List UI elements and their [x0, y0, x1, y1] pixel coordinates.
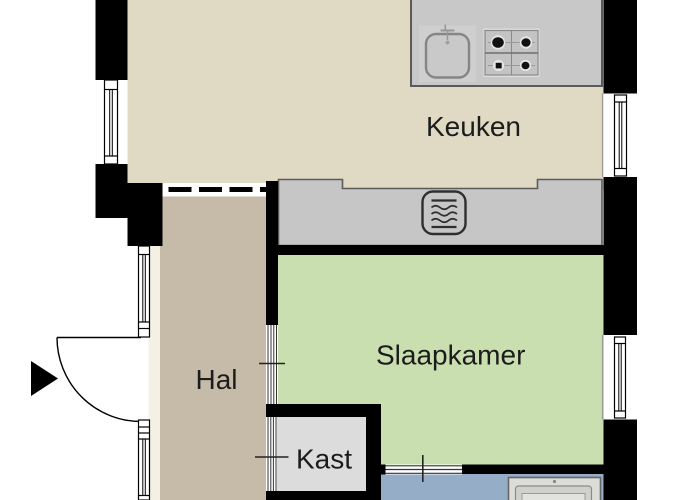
svg-text:Slaapkamer: Slaapkamer [376, 340, 525, 371]
svg-text:Hal: Hal [196, 364, 238, 395]
svg-text:Kast: Kast [296, 444, 352, 475]
svg-text:Keuken: Keuken [426, 111, 521, 142]
